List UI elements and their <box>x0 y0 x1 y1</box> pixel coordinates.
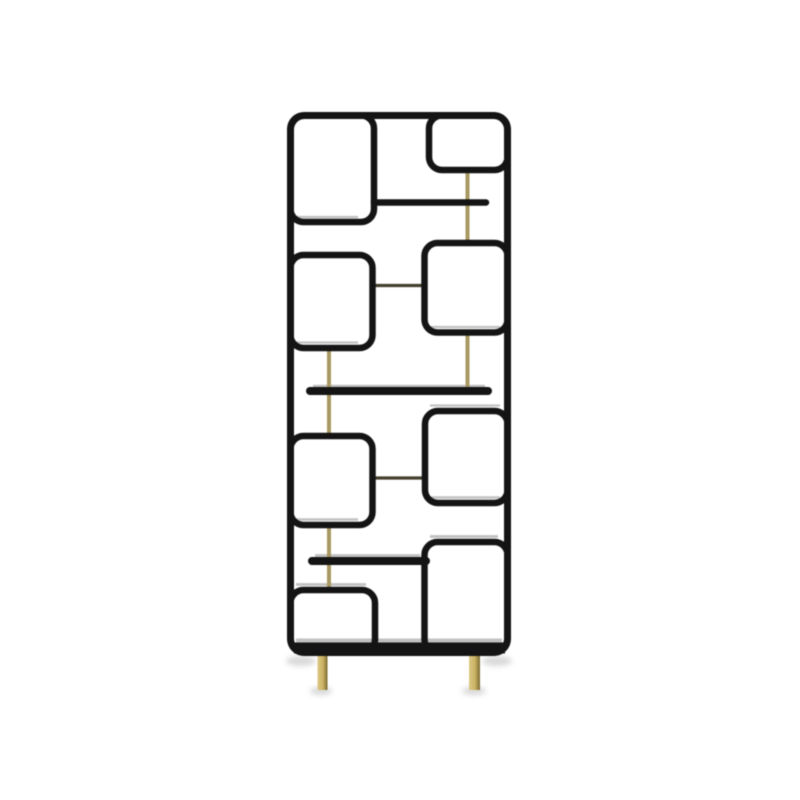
room-divider-product-photo <box>0 0 800 800</box>
room-divider-illustration <box>0 0 800 800</box>
floor-shadow <box>482 656 512 666</box>
compartment-mid-right <box>425 243 508 333</box>
compartment-lower-right <box>425 411 508 503</box>
compartment-mid-left <box>291 255 373 348</box>
compartment-top-right <box>429 116 508 171</box>
compartment-top-left <box>291 116 375 223</box>
brass-leg <box>469 651 480 690</box>
photo-canvas <box>0 0 800 800</box>
brass-leg <box>318 651 328 690</box>
floor-shadow <box>286 656 316 666</box>
compartment-bottom-right <box>425 542 508 653</box>
outer-frame <box>291 116 508 653</box>
compartment-lower-left <box>291 436 373 525</box>
